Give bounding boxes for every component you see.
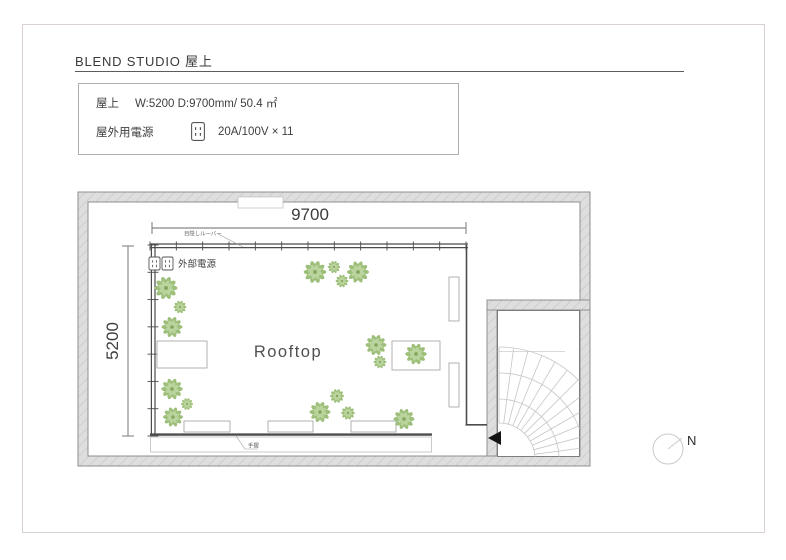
- plant-icon: [328, 261, 341, 274]
- plant-icon: [373, 355, 386, 368]
- planter: [449, 363, 459, 407]
- plant-icon: [304, 260, 327, 283]
- plant-icon: [330, 389, 344, 404]
- outlet-icon: [149, 257, 160, 270]
- plant-icon: [154, 276, 177, 300]
- walkway-strip: [151, 437, 432, 452]
- external-power-label: 外部電源: [178, 258, 217, 270]
- roof-equipment: [238, 197, 283, 208]
- plant-icon: [173, 300, 186, 313]
- dimension-depth: [122, 246, 134, 436]
- dimension-depth-text: 5200: [103, 322, 122, 360]
- plant-icon: [347, 261, 369, 284]
- louver-label: 目隠しルーバー: [184, 230, 222, 238]
- handrail-label: 手摺: [248, 442, 259, 450]
- dimension-width-text: 9700: [291, 205, 329, 224]
- north-indicator: N: [653, 433, 696, 464]
- plant-icon: [181, 398, 193, 411]
- plant-icon: [163, 407, 183, 428]
- plant-icon: [341, 406, 355, 420]
- plant-icon: [366, 334, 387, 356]
- plant-icon: [161, 378, 182, 400]
- outlet-icon: [162, 257, 173, 270]
- plant-icon: [310, 401, 331, 423]
- stairwell: [498, 311, 580, 457]
- floor-plan: 9700 5200 目隠しルーバー 外部電源 Rooftop 手摺: [0, 0, 786, 560]
- room-name-label: Rooftop: [254, 343, 322, 361]
- plant-icon: [162, 316, 183, 338]
- bench: [268, 421, 313, 432]
- bench: [351, 421, 396, 432]
- plant-icon: [394, 408, 415, 430]
- louver-leader: [218, 234, 243, 247]
- table: [157, 341, 207, 368]
- north-label: N: [687, 433, 696, 448]
- bench: [184, 421, 230, 432]
- plant-icon: [335, 274, 348, 287]
- planter: [449, 277, 459, 321]
